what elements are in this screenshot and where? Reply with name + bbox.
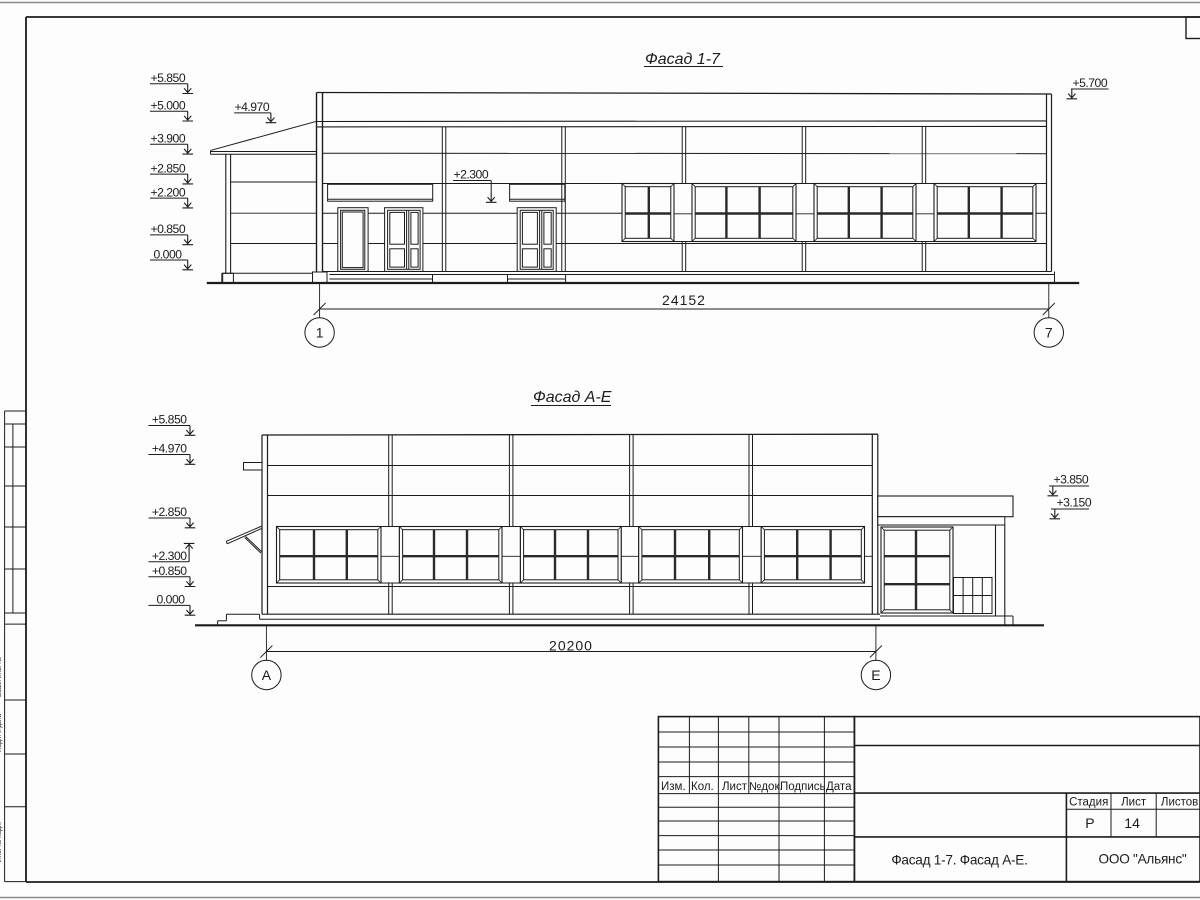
svg-text:1: 1 xyxy=(316,325,324,341)
svg-text:+3.150: +3.150 xyxy=(1057,495,1092,509)
svg-text:20200: 20200 xyxy=(549,638,593,654)
svg-text:0.000: 0.000 xyxy=(154,247,183,261)
svg-text:24152: 24152 xyxy=(662,292,706,308)
svg-text:0.000: 0.000 xyxy=(157,592,186,606)
svg-text:7: 7 xyxy=(1045,325,1053,341)
svg-text:+2.300: +2.300 xyxy=(454,167,489,181)
svg-text:Подпись: Подпись xyxy=(780,781,826,793)
svg-text:+5.850: +5.850 xyxy=(152,412,187,426)
svg-text:+4.970: +4.970 xyxy=(235,100,270,114)
svg-text:+3.850: +3.850 xyxy=(1054,472,1089,486)
svg-text:+4.970: +4.970 xyxy=(152,441,187,455)
svg-text:№док.: №док. xyxy=(749,781,783,793)
svg-text:Изм.: Изм. xyxy=(661,781,686,793)
svg-text:ООО "Альянс": ООО "Альянс" xyxy=(1099,852,1187,867)
svg-text:Фасад А-Е: Фасад А-Е xyxy=(533,389,612,406)
svg-text:Подп. и дата: Подп. и дата xyxy=(0,713,3,752)
svg-text:Стадия: Стадия xyxy=(1069,797,1108,809)
svg-text:+0.850: +0.850 xyxy=(151,222,186,236)
svg-text:Лист: Лист xyxy=(722,781,748,793)
svg-text:+5.000: +5.000 xyxy=(151,98,186,112)
svg-text:+3.900: +3.900 xyxy=(151,131,186,145)
svg-text:А: А xyxy=(262,667,272,683)
svg-text:Лист: Лист xyxy=(1121,797,1147,809)
svg-text:Р: Р xyxy=(1085,815,1094,831)
svg-text:14: 14 xyxy=(1124,815,1140,831)
svg-text:Дата: Дата xyxy=(826,781,852,793)
svg-text:+2.300: +2.300 xyxy=(152,549,187,563)
svg-text:Взам. инв. №: Взам. инв. № xyxy=(0,657,3,697)
svg-text:Фасад 1-7: Фасад 1-7 xyxy=(645,51,721,68)
svg-text:+0.850: +0.850 xyxy=(152,564,187,578)
svg-text:Кол.: Кол. xyxy=(691,781,714,793)
svg-text:+2.850: +2.850 xyxy=(151,161,186,175)
svg-text:Фасад 1-7. Фасад А-Е.: Фасад 1-7. Фасад А-Е. xyxy=(891,853,1027,868)
svg-text:+2.200: +2.200 xyxy=(151,185,186,199)
svg-text:+5.700: +5.700 xyxy=(1073,76,1108,90)
svg-text:Е: Е xyxy=(871,667,880,683)
svg-text:Инв. № подл.: Инв. № подл. xyxy=(0,821,3,862)
svg-text:+2.850: +2.850 xyxy=(152,505,187,519)
svg-text:+5.850: +5.850 xyxy=(151,71,186,85)
svg-text:Листов: Листов xyxy=(1161,797,1198,809)
